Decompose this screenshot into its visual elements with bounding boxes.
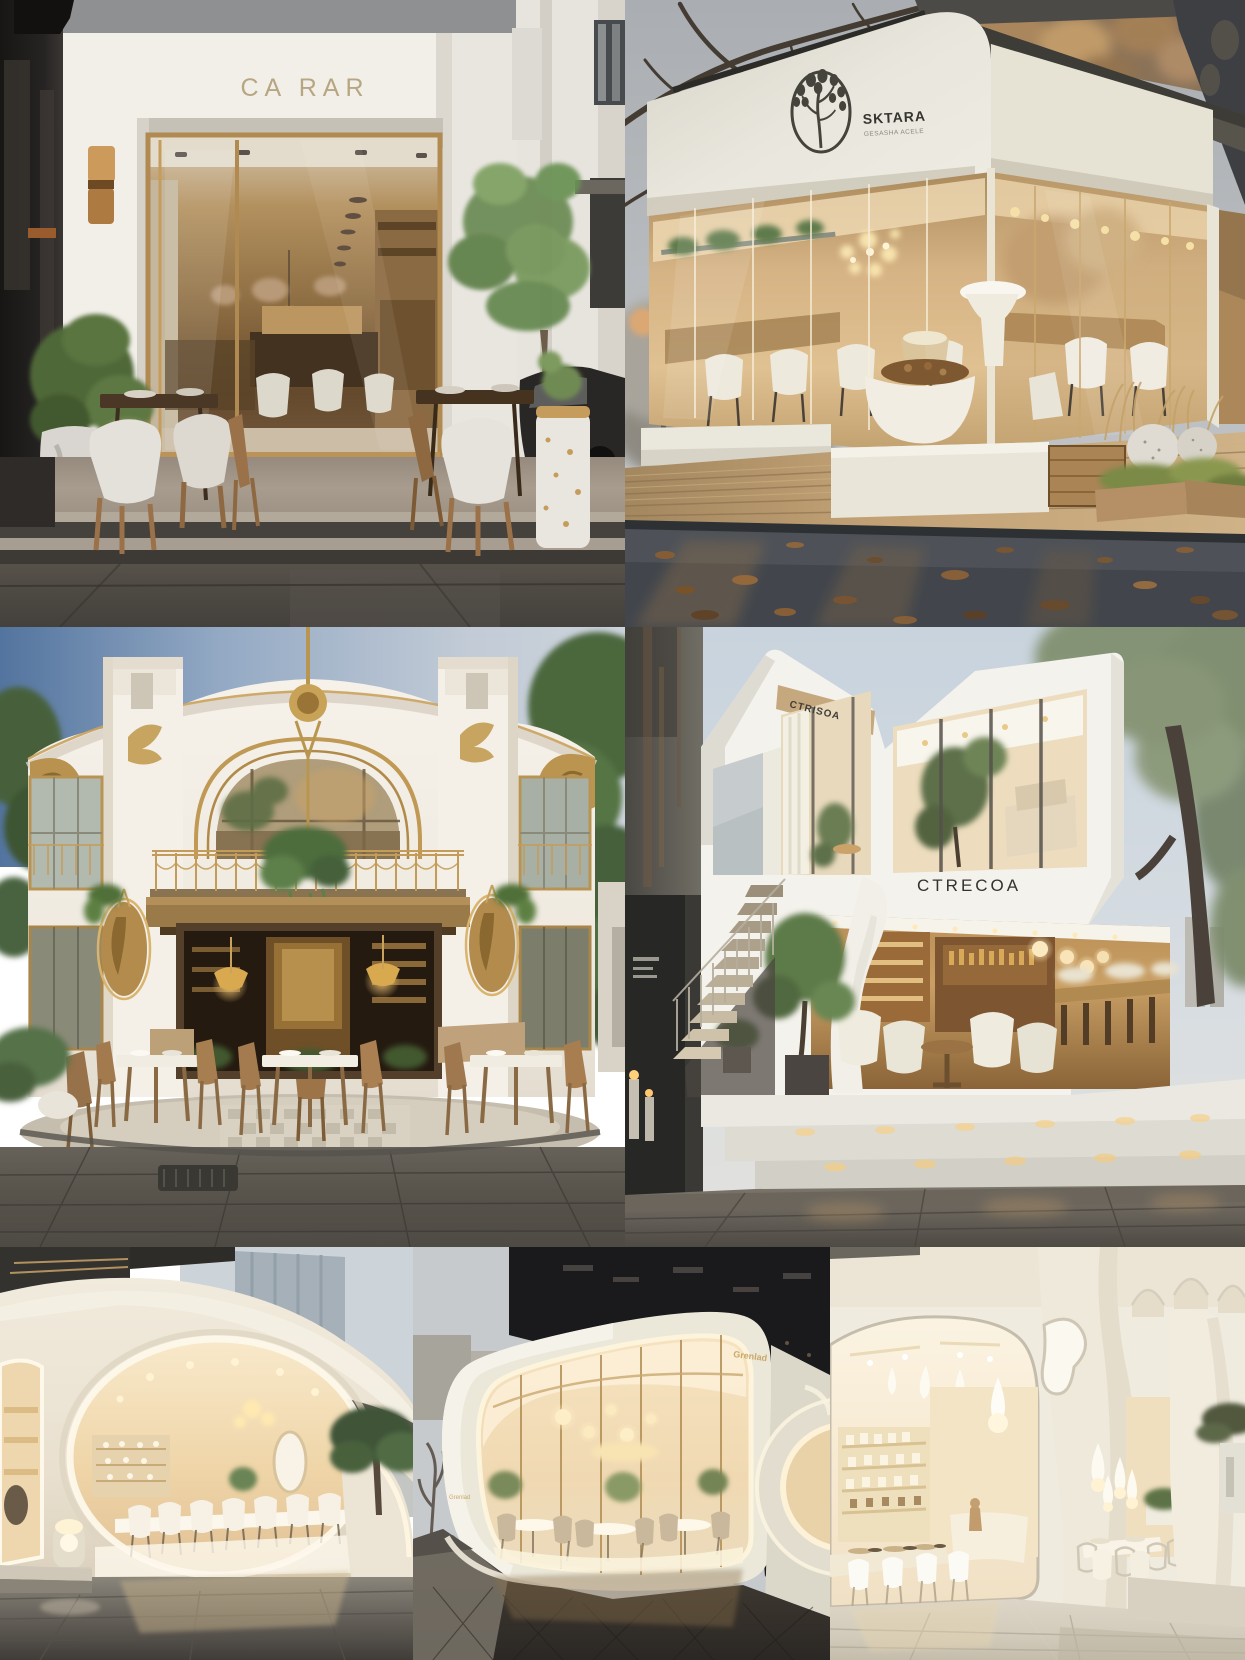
svg-text:CA RAR: CA RAR [240, 74, 369, 102]
svg-text:CTRECOA: CTRECOA [917, 876, 1021, 895]
svg-text:SKTARA: SKTARA [862, 108, 926, 127]
svg-text:Grenlad: Grenlad [449, 1495, 470, 1501]
